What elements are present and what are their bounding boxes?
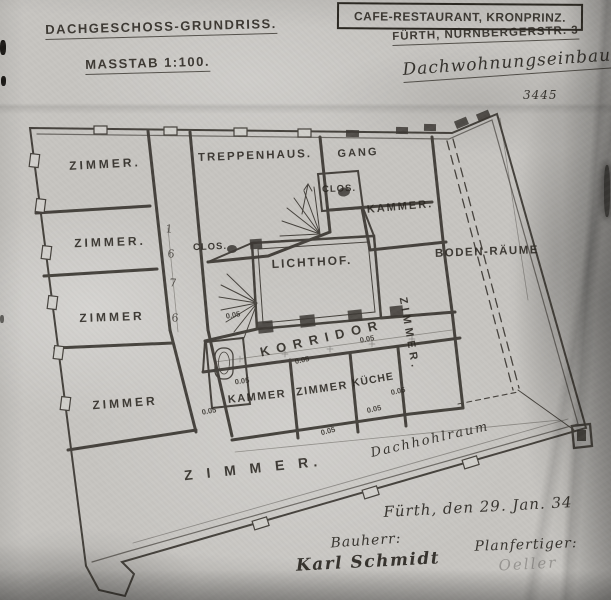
stair-mark: 6 [167,247,175,260]
chimney-mark [572,424,592,448]
scan-blemish [0,40,6,55]
scale-label: MASSTAB 1:100. [85,54,210,75]
stair-mark: 7 [169,276,177,289]
room-label-zimmer-w3: ZIMMER [79,309,145,325]
stair-mark: 1 [165,222,173,235]
room-label-gang: GANG [337,146,379,160]
scan-blemish [1,76,6,86]
drafter-signature: Oeller [498,553,558,574]
room-label-clos-left: CLOS. [193,241,227,253]
scan-blemish [604,165,610,217]
scan-blemish [0,315,4,323]
room-label-clos-upper: CLOS. [322,183,356,195]
plan-number: 3445 [523,88,558,102]
stair-mark: 6 [171,311,179,324]
scanned-floor-plan-sheet: DACHGESCHOSS-GRUNDRISS. MASSTAB 1:100. C… [0,0,611,600]
project-title: CAFE-RESTAURANT, KRONPRINZ. [354,9,566,24]
room-label-zimmer-w2: ZIMMER. [74,234,146,250]
